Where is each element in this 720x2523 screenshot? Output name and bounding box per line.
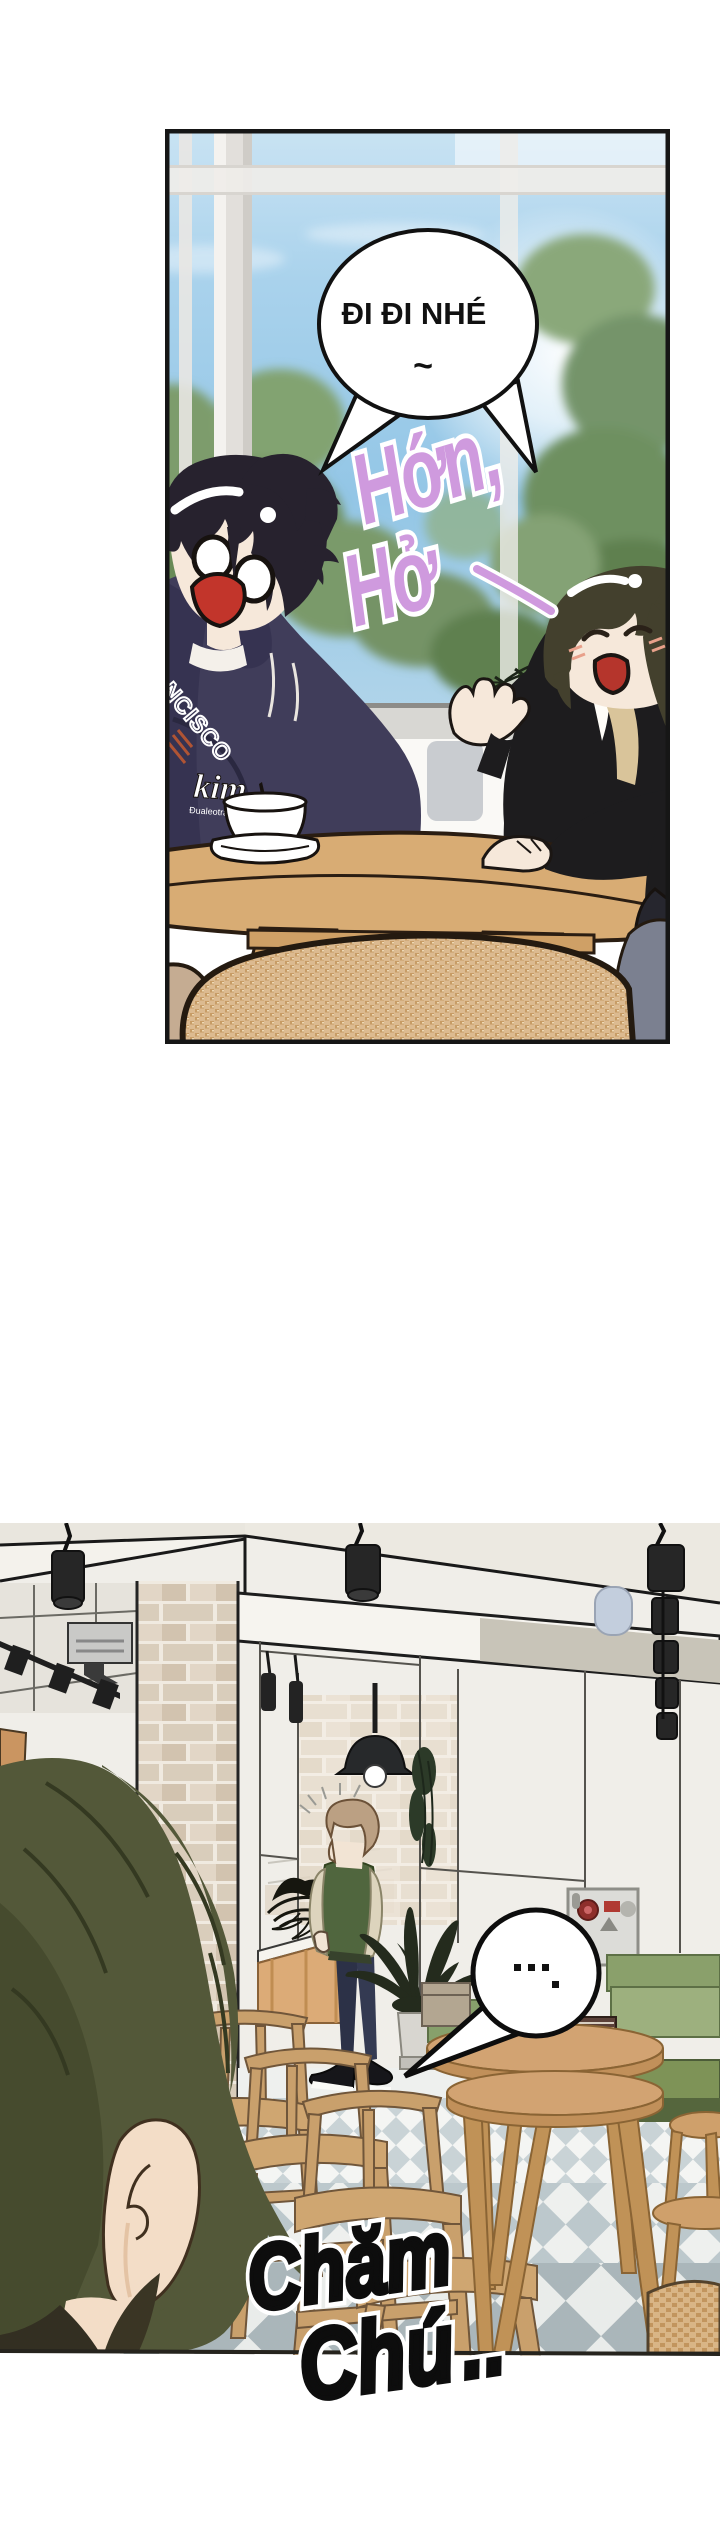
svg-text:~: ~ xyxy=(413,347,433,385)
svg-text:ĐI ĐI NHÉ: ĐI ĐI NHÉ xyxy=(342,296,487,331)
